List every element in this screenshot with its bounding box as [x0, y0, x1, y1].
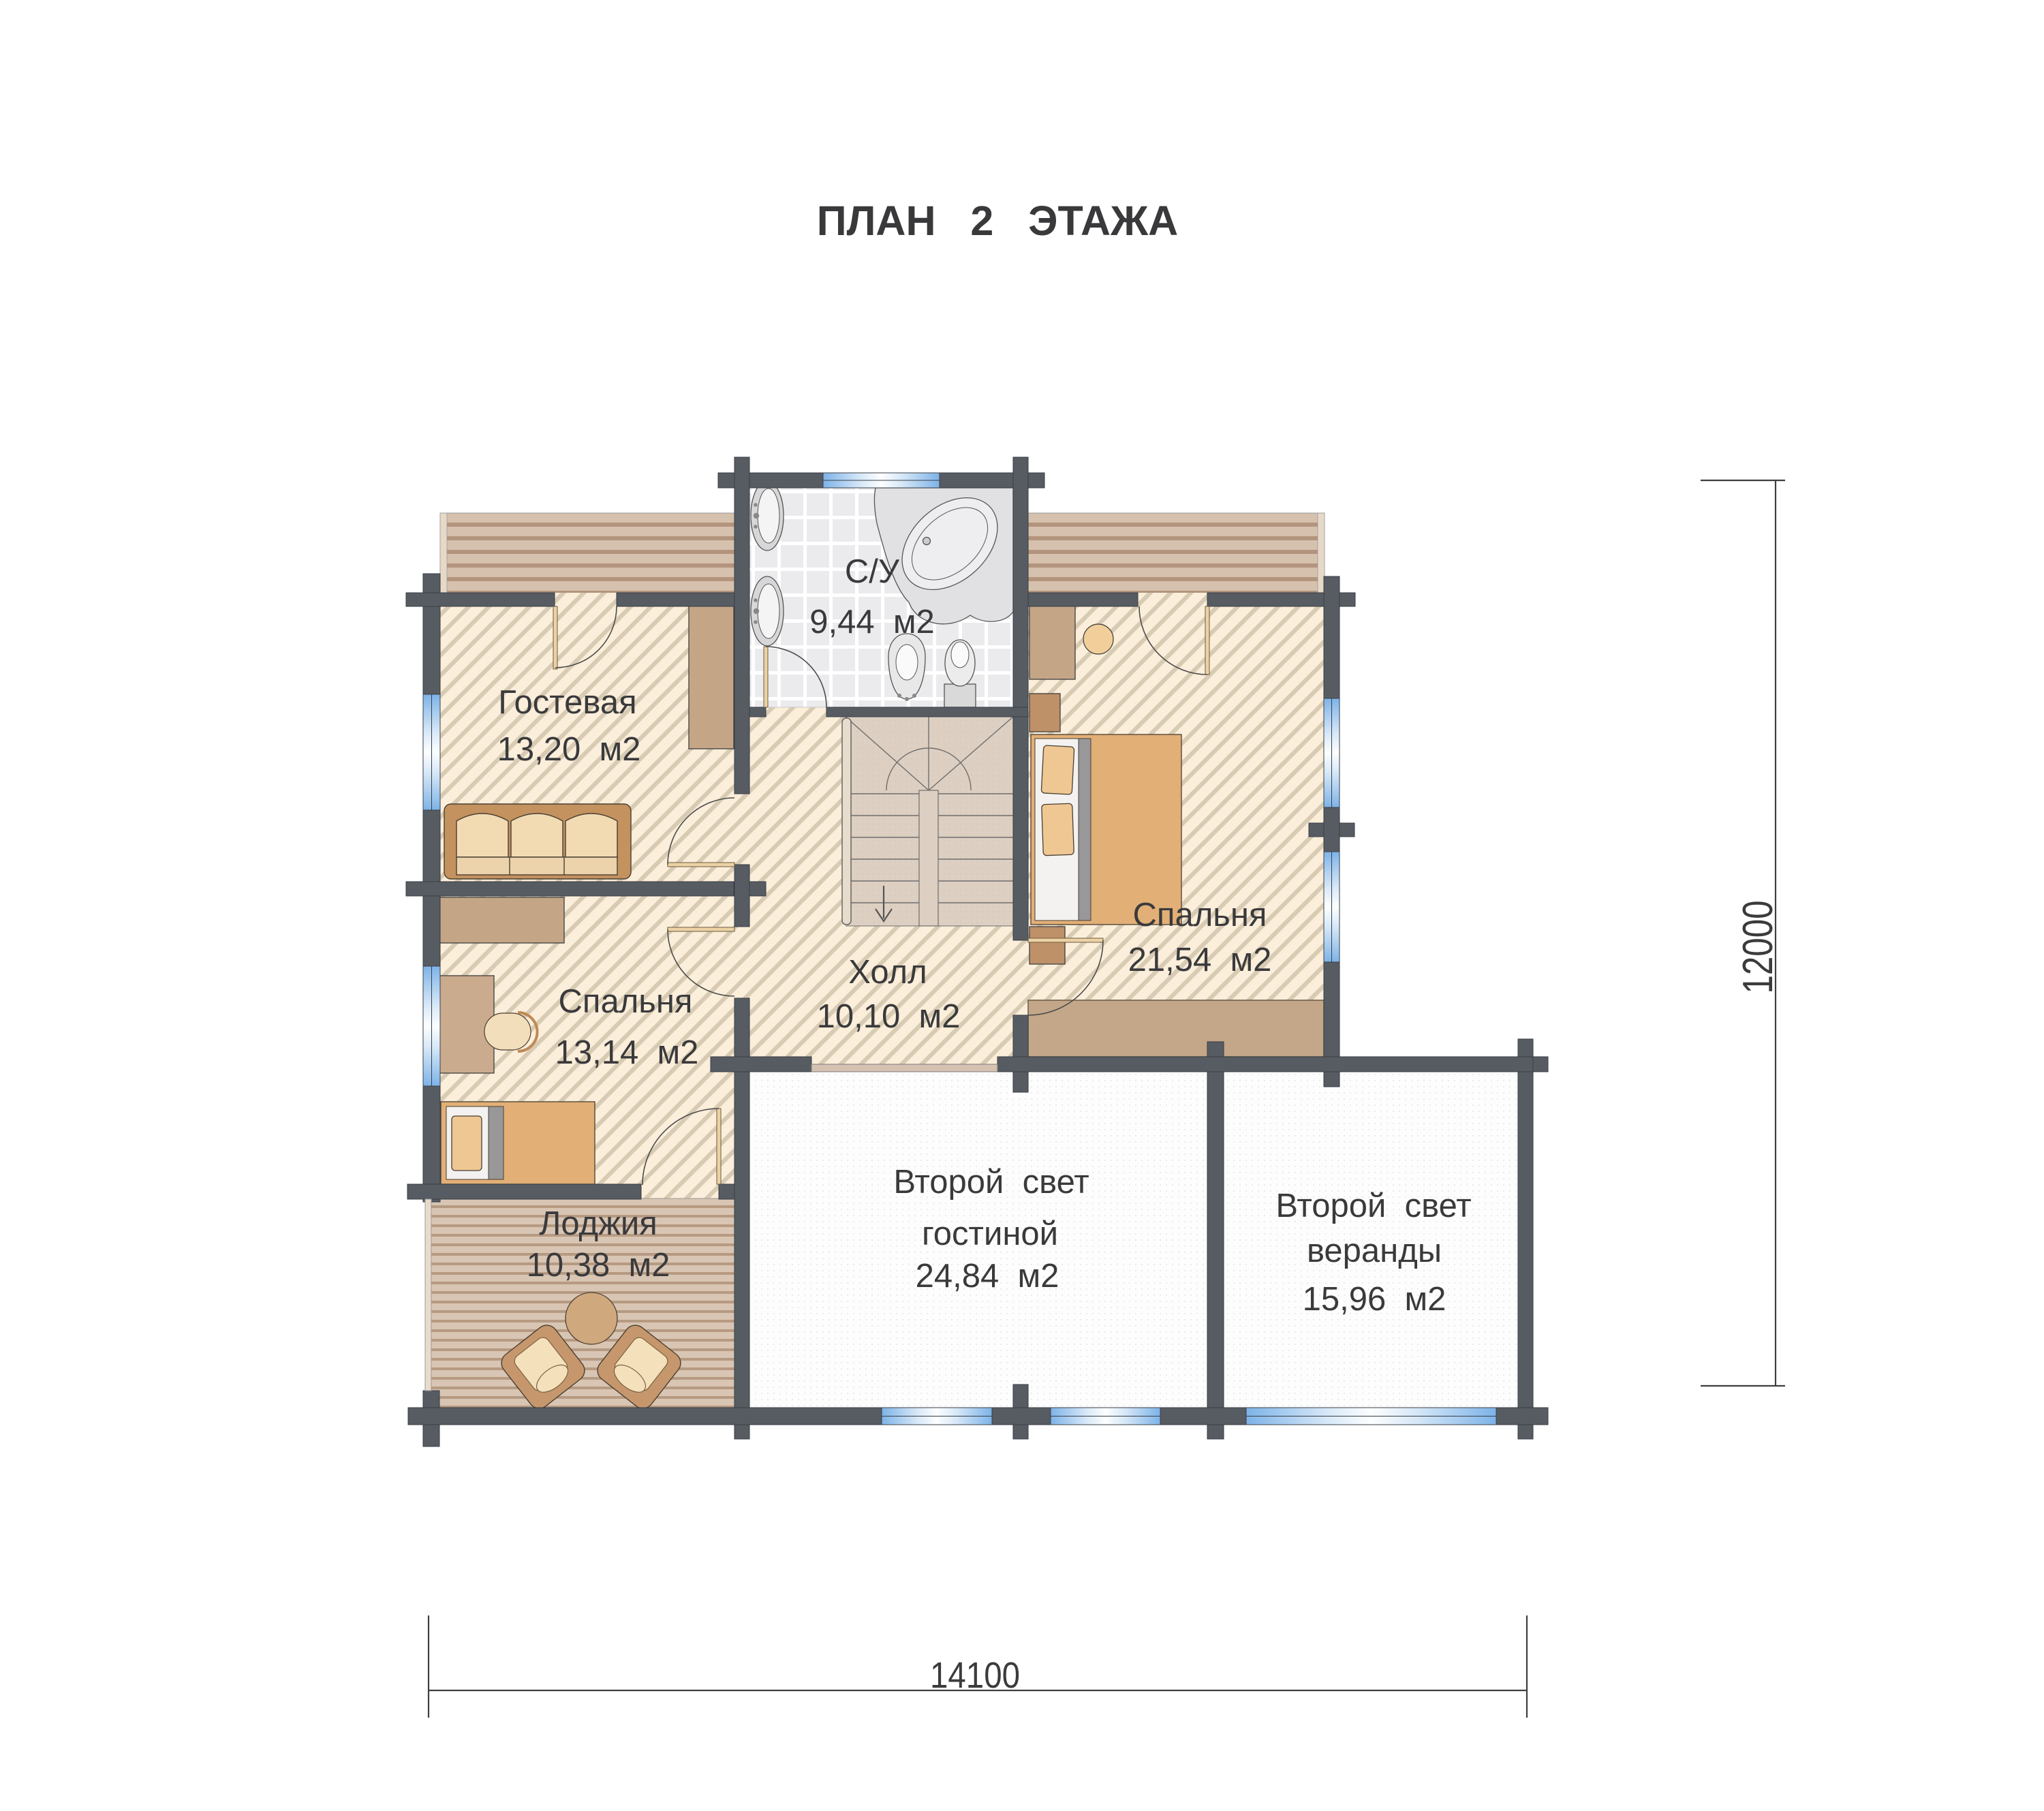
svg-text:15,96 м2: 15,96 м2 [1303, 1281, 1446, 1318]
svg-text:10,10 м2: 10,10 м2 [817, 998, 961, 1035]
svg-text:14100: 14100 [930, 1655, 1020, 1696]
svg-text:9,44 м2: 9,44 м2 [809, 604, 935, 640]
svg-text:13,20 м2: 13,20 м2 [497, 731, 641, 768]
svg-text:Холл: Холл [848, 954, 927, 991]
svg-text:21,54 м2: 21,54 м2 [1128, 942, 1272, 978]
svg-text:Второй свет: Второй свет [893, 1164, 1089, 1201]
svg-text:веранды: веранды [1307, 1233, 1442, 1269]
svg-text:Спальня: Спальня [1133, 897, 1267, 933]
svg-text:Спальня: Спальня [559, 983, 693, 1020]
svg-text:Второй свет: Второй свет [1275, 1188, 1471, 1224]
svg-text:ПЛАН 2 ЭТАЖА: ПЛАН 2 ЭТАЖА [817, 198, 1178, 244]
svg-text:13,14 м2: 13,14 м2 [555, 1034, 699, 1071]
svg-text:12000: 12000 [1735, 901, 1782, 994]
svg-text:Гостевая: Гостевая [498, 684, 636, 721]
svg-text:С/У: С/У [845, 553, 900, 590]
svg-text:Лоджия: Лоджия [539, 1205, 657, 1242]
svg-text:24,84 м2: 24,84 м2 [916, 1258, 1059, 1295]
svg-text:10,38 м2: 10,38 м2 [527, 1247, 670, 1284]
svg-text:гостиной: гостиной [922, 1216, 1058, 1252]
